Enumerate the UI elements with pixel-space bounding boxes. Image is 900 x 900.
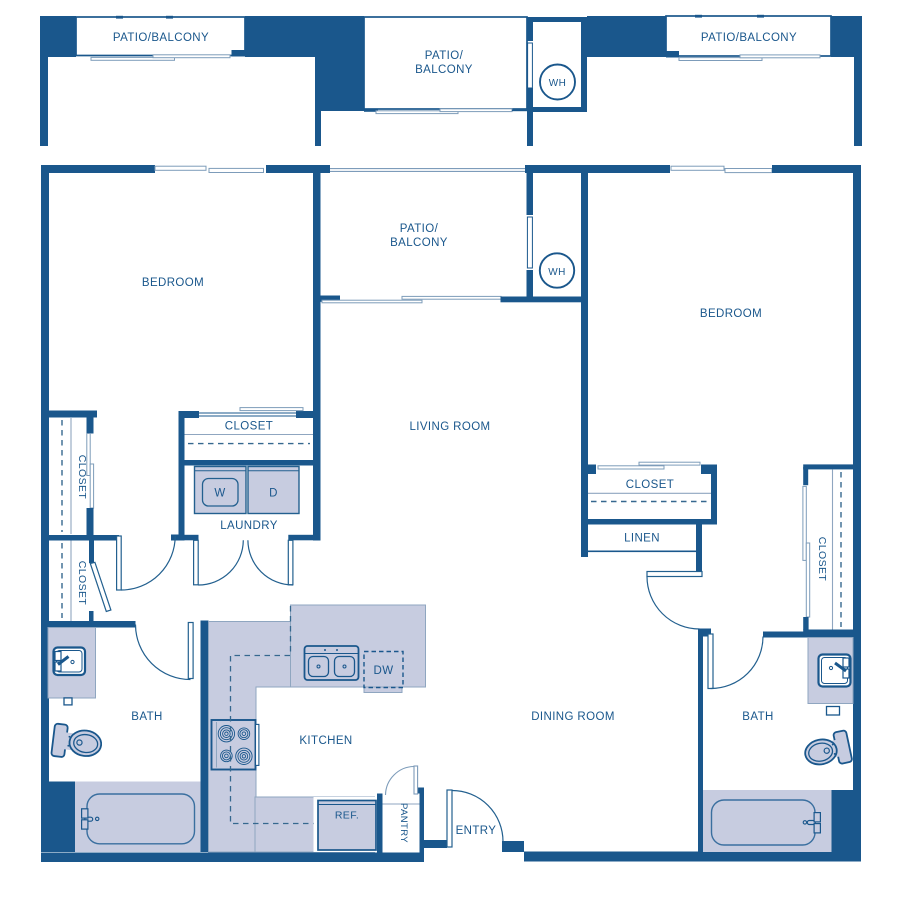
svg-text:PATIO/: PATIO/ (425, 50, 464, 62)
svg-text:WH: WH (549, 78, 566, 89)
svg-text:W: W (214, 488, 225, 500)
svg-text:DINING ROOM: DINING ROOM (531, 711, 615, 723)
svg-text:CLOSET: CLOSET (626, 479, 674, 491)
svg-text:CLOSET: CLOSET (225, 421, 273, 433)
svg-text:KITCHEN: KITCHEN (299, 735, 352, 747)
svg-text:ENTRY: ENTRY (456, 825, 497, 837)
svg-text:BEDROOM: BEDROOM (700, 308, 762, 320)
svg-text:BATH: BATH (742, 711, 773, 723)
svg-text:D: D (269, 488, 278, 500)
svg-text:REF.: REF. (335, 810, 359, 822)
svg-text:PANTRY: PANTRY (398, 803, 409, 843)
svg-text:WH: WH (548, 267, 565, 278)
svg-text:DW: DW (374, 665, 394, 677)
svg-text:BALCONY: BALCONY (390, 237, 448, 249)
svg-text:PATIO/: PATIO/ (400, 223, 439, 235)
svg-text:CLOSET: CLOSET (816, 537, 828, 582)
svg-text:PATIO/BALCONY: PATIO/BALCONY (701, 32, 797, 44)
svg-text:CLOSET: CLOSET (76, 455, 88, 500)
svg-text:BEDROOM: BEDROOM (142, 277, 204, 289)
svg-text:CLOSET: CLOSET (76, 561, 88, 606)
svg-text:BATH: BATH (131, 711, 162, 723)
svg-text:LINEN: LINEN (624, 533, 660, 545)
svg-text:PATIO/BALCONY: PATIO/BALCONY (113, 32, 209, 44)
svg-text:LIVING ROOM: LIVING ROOM (409, 421, 490, 433)
svg-text:LAUNDRY: LAUNDRY (220, 520, 278, 532)
svg-text:BALCONY: BALCONY (415, 64, 473, 76)
